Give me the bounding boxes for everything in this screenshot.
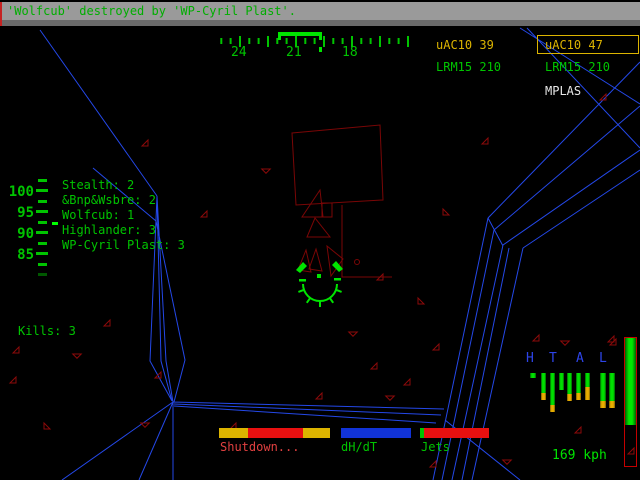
htal-letter-t: T <box>549 352 557 366</box>
damage-bar <box>567 373 572 401</box>
speed-readout: 169 kph <box>552 449 607 463</box>
message-bar-left-mark <box>0 2 2 26</box>
score-row: &Bnp&Wsbre: 2 <box>62 194 156 207</box>
htal-letter-a: A <box>576 352 584 366</box>
reticle-center <box>317 274 321 278</box>
compass-ticks <box>220 36 409 47</box>
score-row: Wolfcub: 1 <box>62 209 134 222</box>
damage-bar <box>530 373 536 378</box>
score-row: Highlander: 3 <box>62 224 156 237</box>
kills-counter: Kills: 3 <box>18 325 76 338</box>
compass-label-24: 24 <box>231 46 247 60</box>
damage-bar <box>609 373 615 408</box>
weapon-uac10-right: uAC10 47 <box>545 39 603 52</box>
htal-letter-h: H <box>526 352 534 366</box>
htal-letter-l: L <box>599 352 607 366</box>
heat-gauge <box>219 428 330 438</box>
weapon-uac10-left: uAC10 39 <box>436 39 494 52</box>
damage-bar <box>541 373 546 400</box>
damage-bar <box>585 373 590 400</box>
compass-label-18: 18 <box>342 46 358 60</box>
kill-message: 'Wolfcub' destroyed by 'WP-Cyril Plast'. <box>7 5 296 18</box>
jets-gauge <box>420 428 489 438</box>
weapon-lrm15-right: LRM15 210 <box>545 61 610 74</box>
jets-label: Jets <box>421 441 450 454</box>
damage-bar <box>550 373 555 412</box>
damage-bar <box>559 373 564 390</box>
dhdt-gauge <box>341 428 411 438</box>
throttle-fill <box>625 338 636 425</box>
weapon-mplas: MPLAS <box>545 85 581 98</box>
compass-center-index <box>319 47 322 52</box>
throttle-gauge <box>624 337 637 467</box>
throttle-scale-ticks <box>36 179 58 276</box>
score-row: Stealth: 2 <box>62 179 134 192</box>
scale-85: 85 <box>6 248 34 263</box>
shutdown-label: Shutdown... <box>220 441 299 454</box>
game-screen: 'Wolfcub' destroyed by 'WP-Cyril Plast'.… <box>0 0 640 480</box>
scale-100: 100 <box>6 185 34 200</box>
compass-label-21: 21 <box>286 46 302 60</box>
damage-bar <box>600 373 606 408</box>
debris-marks <box>10 94 634 467</box>
score-row: WP-Cyril Plast: 3 <box>62 239 185 252</box>
targeting-reticle <box>296 261 343 307</box>
damage-bar <box>576 373 581 400</box>
weapon-lrm15-left: LRM15 210 <box>436 61 501 74</box>
scale-95: 95 <box>6 206 34 221</box>
dhdt-label: dH/dT <box>341 441 377 454</box>
message-bar-shadow <box>0 20 640 26</box>
enemy-wireframe <box>292 125 392 277</box>
scale-90: 90 <box>6 227 34 242</box>
building-outline <box>292 125 383 205</box>
throttle-indicator <box>52 222 58 225</box>
